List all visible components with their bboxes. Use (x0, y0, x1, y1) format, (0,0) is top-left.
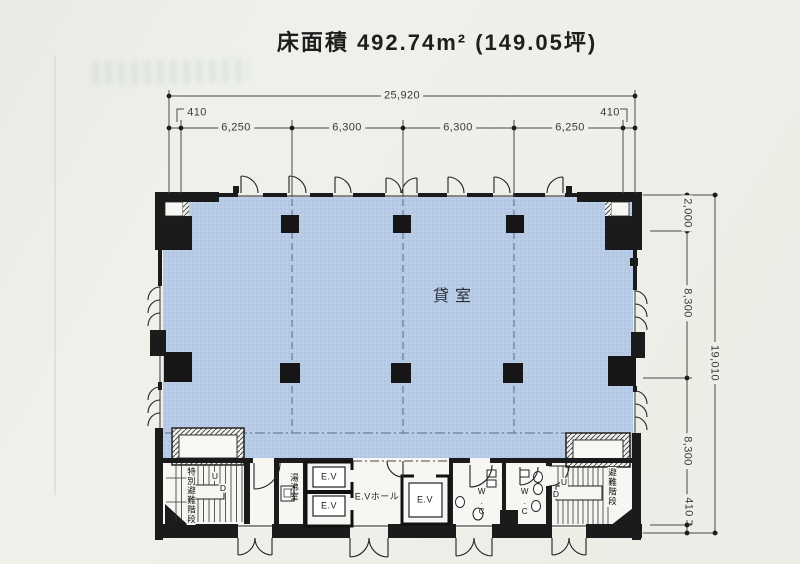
elevator-3-label: E.V (417, 496, 433, 505)
wc-1-label: W.C (477, 486, 485, 518)
dim-height-total: 19,010 (709, 342, 720, 384)
dim-width-seg-410-right: 410 (597, 108, 623, 119)
dim-height-seg-2000: 2,000 (682, 195, 693, 231)
room-label-kitchenette: 湯沸室 (290, 472, 299, 503)
elevator-2-label: E.V (321, 502, 337, 511)
dim-width-seg-6300-a: 6,300 (329, 123, 365, 134)
dim-height-seg-8300-a: 8,300 (682, 285, 693, 321)
stair-right-down-label: D (552, 490, 560, 499)
stair-left-up-label: U (211, 472, 219, 481)
dim-width-seg-410-left: 410 (184, 108, 210, 119)
elevator-hall-label: E.Vホール (355, 493, 400, 502)
room-label-special-escape-stair: 特別避難階段 (187, 466, 196, 525)
floor-plan-drawing (0, 0, 800, 564)
tenant-area-fill (163, 197, 633, 462)
page-title: 床面積 492.74m² (149.05坪) (277, 32, 597, 54)
wc-2-label: W.C (520, 486, 528, 518)
dim-width-seg-6250-a: 6,250 (218, 123, 254, 134)
stair-left-down-label: D (219, 484, 227, 493)
room-label-escape-stair: 避難階段 (608, 467, 617, 507)
dim-height-seg-410: 410 (683, 494, 694, 520)
stair-right-up-label: U (560, 478, 568, 487)
dim-width-seg-6250-b: 6,250 (552, 123, 588, 134)
dim-width-total: 25,920 (381, 91, 423, 102)
dim-width-seg-6300-b: 6,300 (440, 123, 476, 134)
room-label-tenant: 貸室 (433, 289, 477, 305)
scanned-floor-plan-page: 床面積 492.74m² (149.05坪) 25,920 410 6,250 … (0, 0, 800, 564)
elevator-1-label: E.V (321, 473, 337, 482)
dim-height-seg-8300-b: 8,300 (682, 433, 693, 469)
